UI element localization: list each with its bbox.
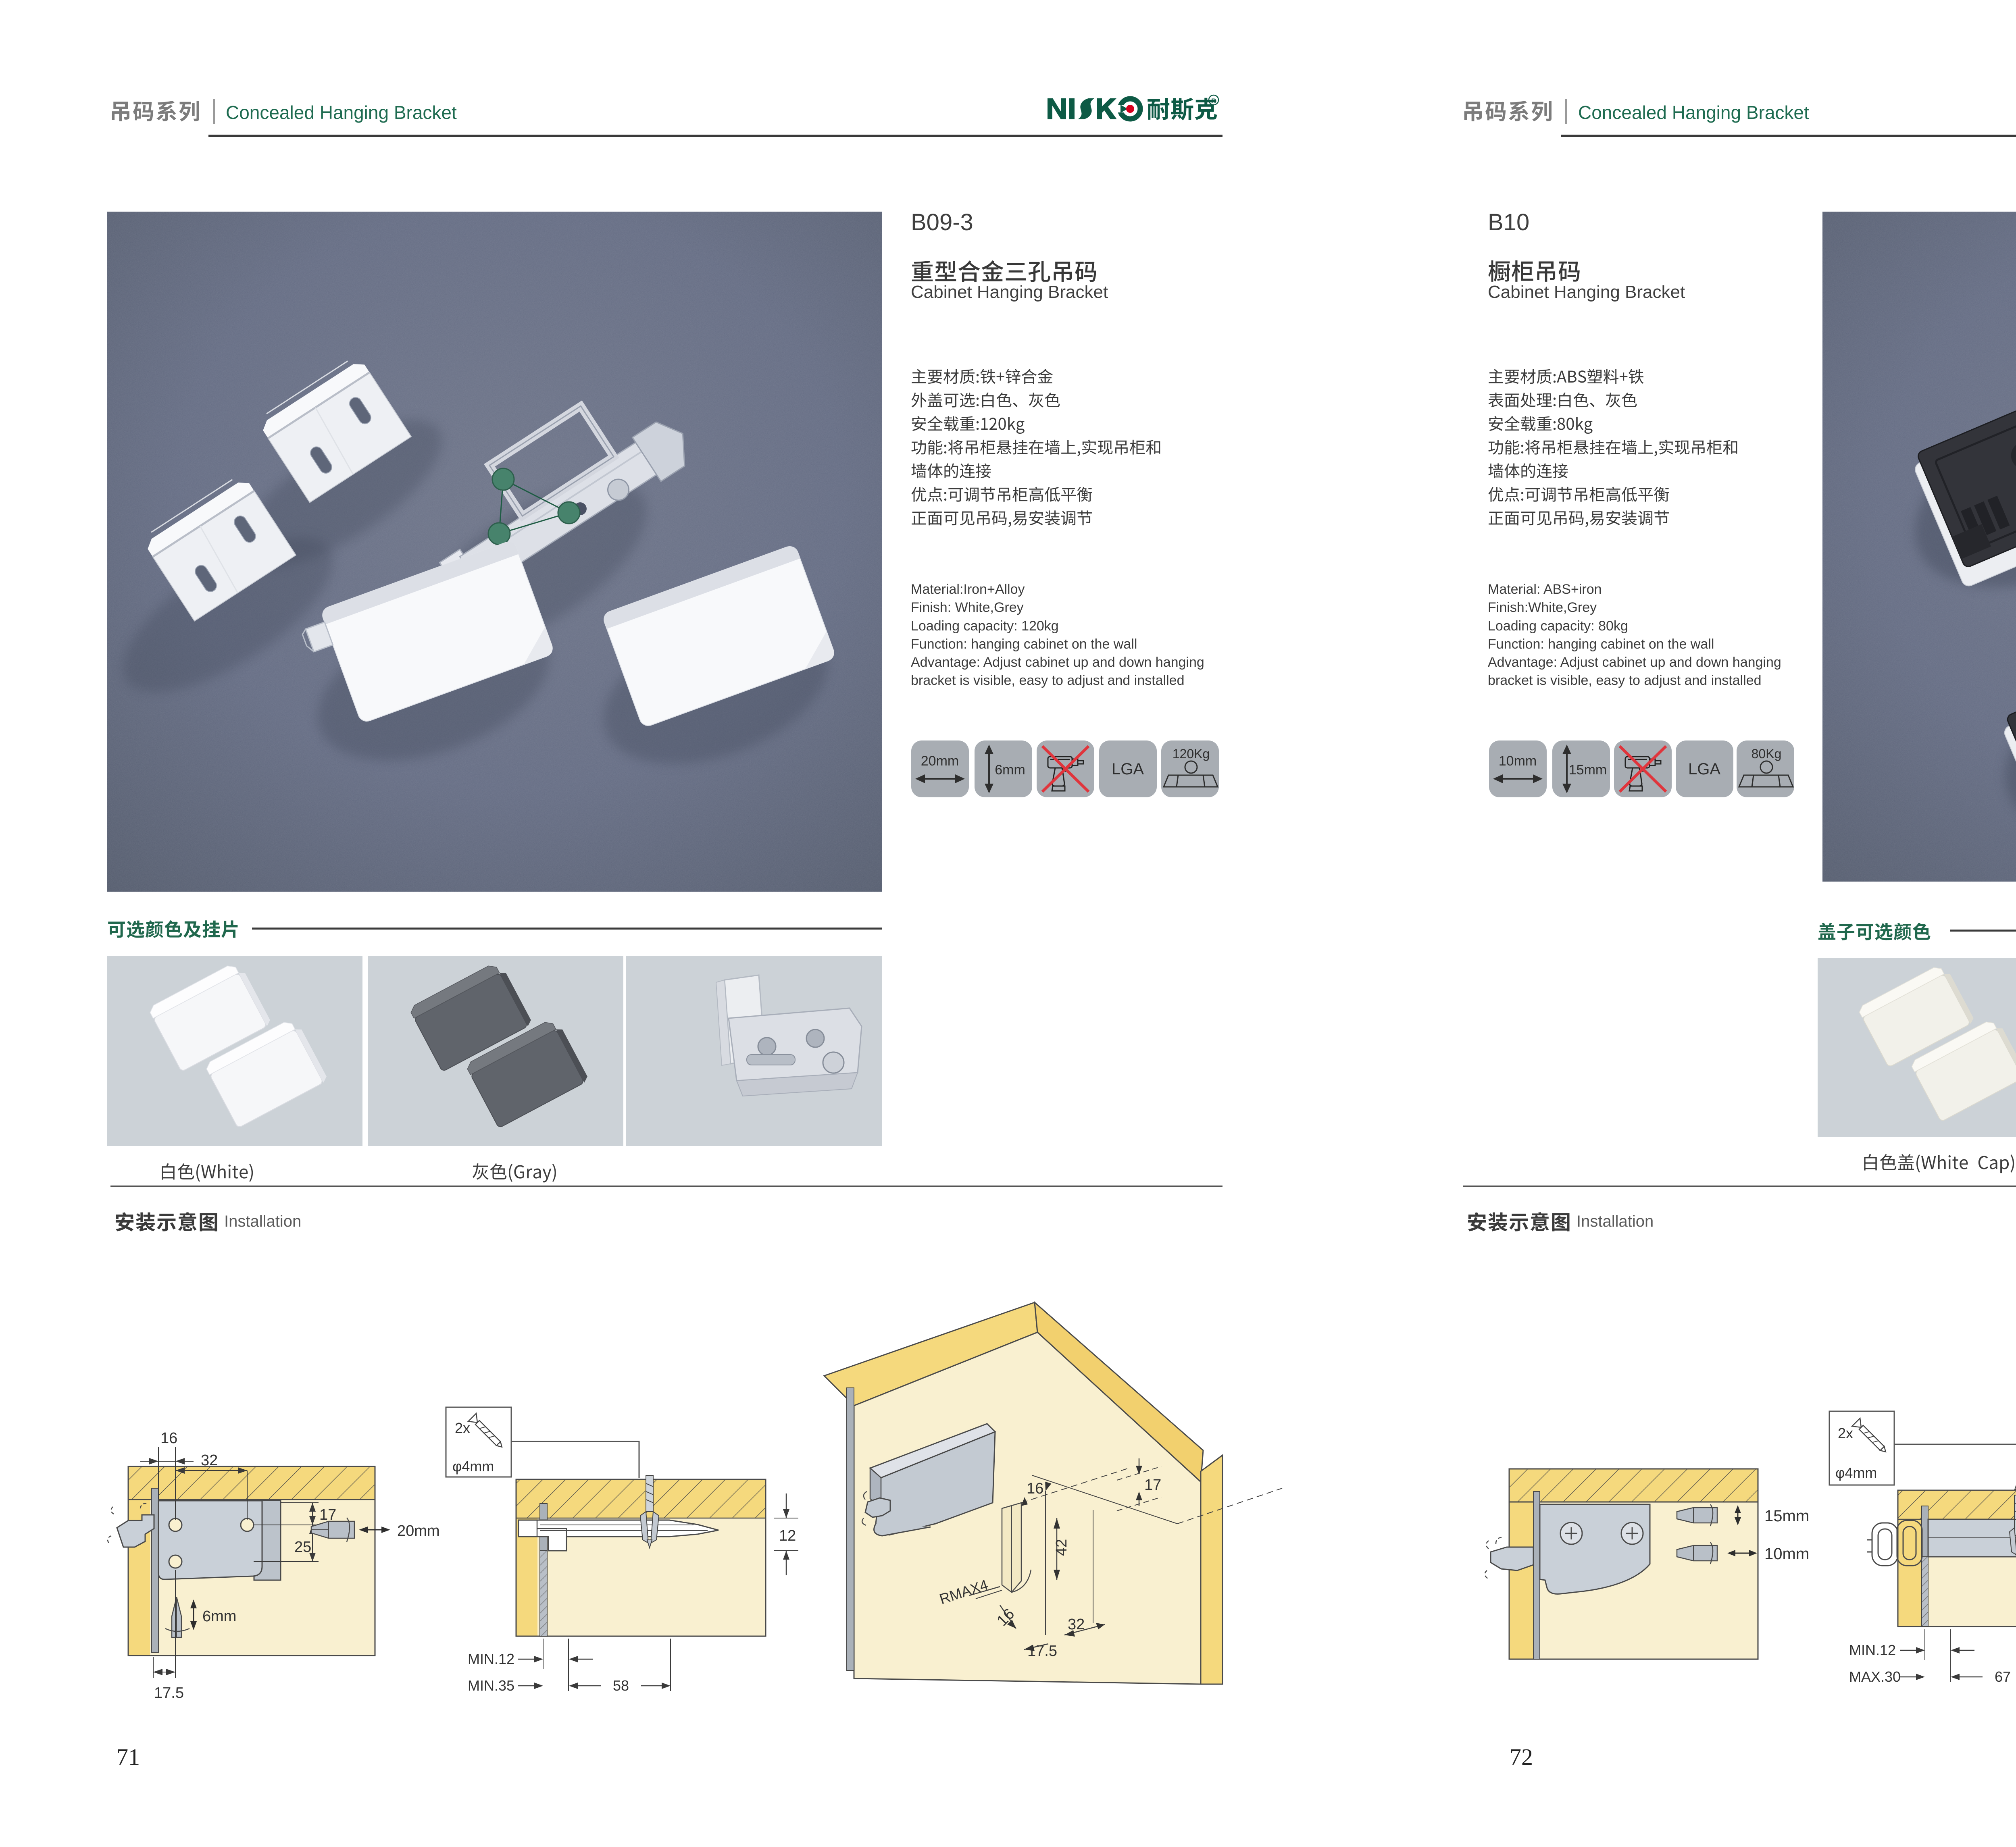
svg-text:MIN.12: MIN.12 — [468, 1651, 514, 1667]
svg-text:φ4mm: φ4mm — [1835, 1464, 1877, 1481]
svg-text:20mm: 20mm — [397, 1523, 440, 1539]
svg-text:6mm: 6mm — [202, 1608, 236, 1625]
svg-text:20mm: 20mm — [921, 753, 959, 769]
svg-text:16: 16 — [1027, 1480, 1043, 1497]
svg-text:42: 42 — [1053, 1539, 1070, 1556]
svg-text:15mm: 15mm — [1569, 762, 1607, 778]
svg-text:80Kg: 80Kg — [1752, 747, 1782, 761]
svg-text:φ4mm: φ4mm — [452, 1458, 494, 1475]
svg-text:16: 16 — [160, 1430, 177, 1447]
svg-text:32: 32 — [1068, 1616, 1085, 1633]
svg-text:17.5: 17.5 — [154, 1685, 184, 1701]
svg-text:6mm: 6mm — [995, 762, 1025, 778]
svg-text:120Kg: 120Kg — [1173, 747, 1210, 761]
svg-text:17: 17 — [319, 1506, 336, 1523]
svg-text:R: R — [1211, 97, 1216, 105]
svg-text:67: 67 — [1995, 1668, 2011, 1685]
svg-text:17.5: 17.5 — [1027, 1643, 1057, 1660]
svg-text:LGA: LGA — [1688, 760, 1720, 778]
svg-text:10mm: 10mm — [1499, 753, 1537, 769]
svg-text:17: 17 — [1144, 1477, 1161, 1493]
svg-text:2x: 2x — [1838, 1425, 1853, 1441]
svg-text:12: 12 — [779, 1527, 796, 1544]
svg-text:MAX.30: MAX.30 — [1849, 1668, 1901, 1685]
svg-text:58: 58 — [613, 1677, 629, 1694]
svg-text:MIN.12: MIN.12 — [1849, 1642, 1896, 1658]
svg-text:32: 32 — [201, 1452, 218, 1469]
svg-text:25: 25 — [294, 1539, 311, 1556]
svg-text:2x: 2x — [455, 1420, 470, 1436]
svg-text:MIN.35: MIN.35 — [468, 1677, 514, 1694]
svg-text:10mm: 10mm — [1764, 1545, 1809, 1563]
svg-text:15mm: 15mm — [1764, 1507, 1809, 1525]
svg-text:LGA: LGA — [1112, 760, 1144, 778]
